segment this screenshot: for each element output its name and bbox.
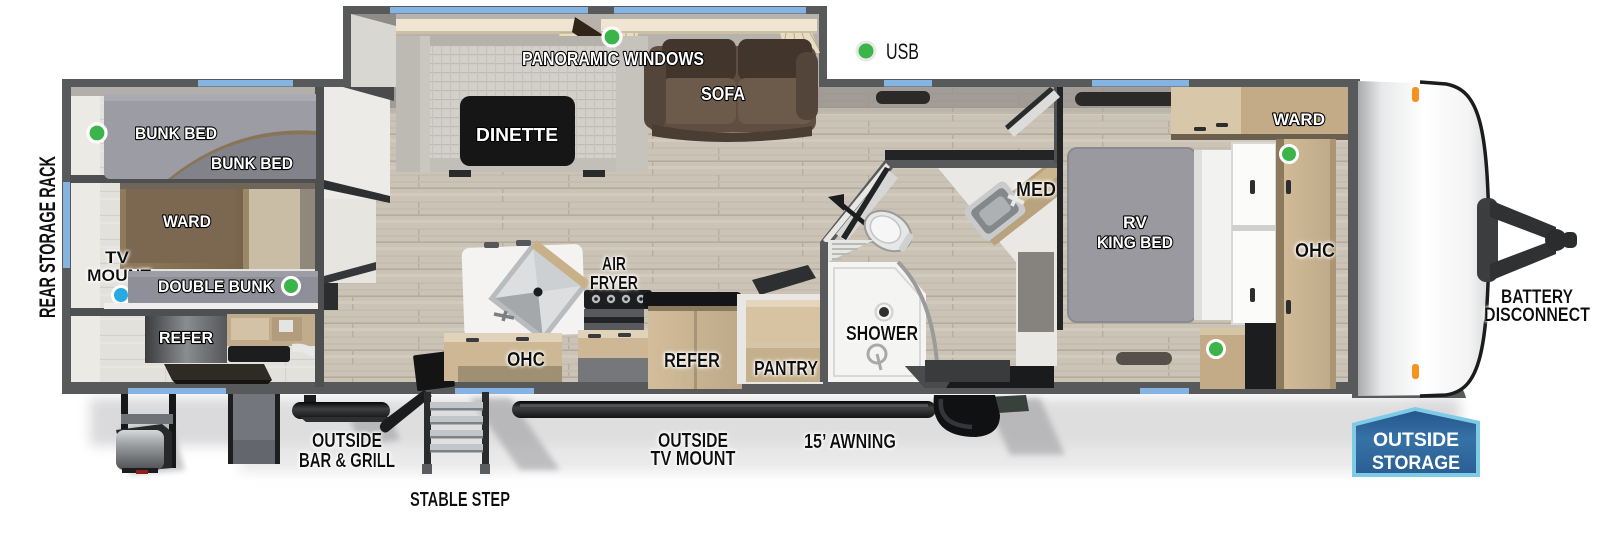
- svg-text:RV: RV: [1123, 213, 1148, 232]
- svg-text:STORAGE: STORAGE: [1372, 453, 1460, 474]
- svg-text:DINETTE: DINETTE: [476, 125, 558, 145]
- svg-text:PANORAMIC WINDOWS: PANORAMIC WINDOWS: [522, 49, 704, 69]
- svg-text:PANTRY: PANTRY: [754, 358, 819, 380]
- svg-text:FRYER: FRYER: [590, 273, 638, 293]
- svg-text:OHC: OHC: [1295, 240, 1335, 262]
- svg-text:DOUBLE BUNK: DOUBLE BUNK: [158, 277, 275, 296]
- svg-text:USB: USB: [886, 39, 919, 64]
- svg-text:SHOWER: SHOWER: [846, 323, 918, 345]
- svg-text:MED: MED: [1016, 179, 1056, 201]
- svg-text:15’ AWNING: 15’ AWNING: [804, 431, 896, 453]
- svg-text:OUTSIDE: OUTSIDE: [1373, 430, 1459, 451]
- svg-text:TV: TV: [105, 248, 130, 267]
- svg-text:BUNK BED: BUNK BED: [135, 124, 217, 143]
- svg-text:SOFA: SOFA: [701, 84, 745, 104]
- svg-text:OUTSIDE: OUTSIDE: [312, 430, 382, 452]
- svg-text:WARD: WARD: [1273, 110, 1325, 129]
- svg-text:REAR STORAGE RACK: REAR STORAGE RACK: [35, 156, 60, 318]
- svg-text:REFER: REFER: [664, 350, 720, 372]
- svg-text:DISCONNECT: DISCONNECT: [1484, 305, 1590, 326]
- svg-text:WARD: WARD: [163, 212, 211, 231]
- svg-text:OHC: OHC: [507, 349, 545, 371]
- svg-text:KING BED: KING BED: [1097, 233, 1173, 252]
- svg-text:STABLE STEP: STABLE STEP: [410, 489, 510, 511]
- svg-text:TV MOUNT: TV MOUNT: [651, 448, 736, 470]
- svg-text:BAR & GRILL: BAR & GRILL: [299, 450, 395, 472]
- svg-text:AIR: AIR: [602, 254, 626, 274]
- svg-text:REFER: REFER: [159, 330, 213, 347]
- svg-text:BUNK BED: BUNK BED: [211, 154, 293, 173]
